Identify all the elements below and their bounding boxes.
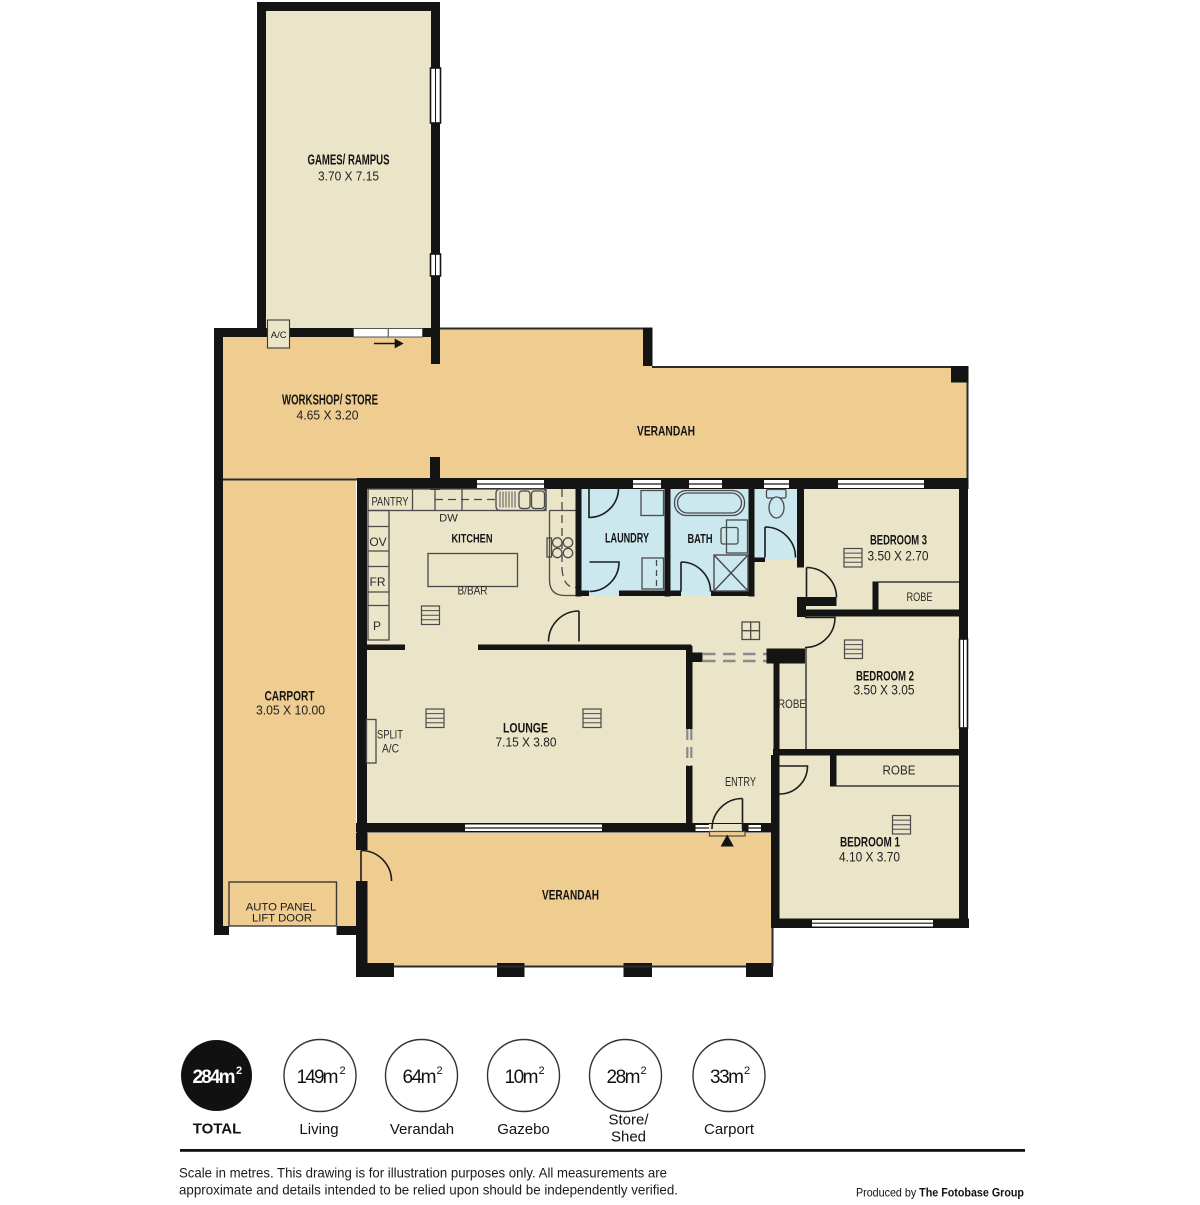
svg-text:2: 2 [340,1065,346,1077]
svg-text:2: 2 [236,1065,242,1077]
svg-text:BATH: BATH [688,531,713,546]
svg-text:4.65 X 3.20: 4.65 X 3.20 [297,408,359,423]
svg-text:VERANDAH: VERANDAH [542,888,599,903]
svg-text:ROBE: ROBE [907,590,933,604]
svg-text:2: 2 [641,1065,647,1077]
svg-text:KITCHEN: KITCHEN [452,532,493,546]
svg-text:GAMES/ RAMPUS: GAMES/ RAMPUS [308,153,390,169]
svg-text:LAUNDRY: LAUNDRY [605,531,649,546]
svg-text:OV: OV [369,535,386,549]
svg-text:284m: 284m [193,1067,236,1088]
svg-text:2: 2 [744,1065,750,1077]
svg-text:2: 2 [539,1065,545,1077]
svg-text:2: 2 [437,1065,443,1077]
svg-text:TOTAL: TOTAL [193,1121,242,1138]
svg-text:A/C: A/C [271,330,287,341]
svg-text:Gazebo: Gazebo [497,1121,550,1138]
svg-text:ENTRY: ENTRY [725,775,756,789]
svg-text:28m: 28m [607,1067,641,1088]
svg-text:Store/: Store/ [608,1112,649,1129]
svg-text:3.70 X 7.15: 3.70 X 7.15 [318,169,379,184]
svg-text:BEDROOM 1: BEDROOM 1 [840,834,900,850]
svg-text:WORKSHOP/ STORE: WORKSHOP/ STORE [282,393,378,409]
svg-text:Carport: Carport [704,1121,755,1138]
svg-text:Scale in metres. This drawing: Scale in metres. This drawing is for ill… [179,1166,667,1181]
svg-text:VERANDAH: VERANDAH [637,424,695,439]
svg-text:64m: 64m [403,1067,437,1088]
svg-text:3.50 X 2.70: 3.50 X 2.70 [868,549,929,564]
svg-text:10m: 10m [505,1067,539,1088]
svg-text:FR: FR [370,575,386,589]
svg-text:7.15 X 3.80: 7.15 X 3.80 [496,735,557,750]
svg-text:3.50 X 3.05: 3.50 X 3.05 [854,683,915,698]
svg-text:LIFT DOOR: LIFT DOOR [252,913,312,925]
svg-text:4.10 X 3.70: 4.10 X 3.70 [839,850,900,865]
svg-text:approximate and details intend: approximate and details intended to be r… [179,1183,678,1198]
svg-text:CARPORT: CARPORT [265,688,315,704]
svg-text:Verandah: Verandah [390,1121,454,1138]
svg-text:ROBE: ROBE [778,699,806,711]
svg-text:Living: Living [299,1121,338,1138]
svg-text:BEDROOM 3: BEDROOM 3 [870,532,927,548]
svg-text:LOUNGE: LOUNGE [503,720,548,736]
svg-text:149m: 149m [297,1067,339,1088]
svg-text:PANTRY: PANTRY [372,495,409,509]
svg-text:3.05 X 10.00: 3.05 X 10.00 [256,703,325,718]
svg-text:Shed: Shed [611,1129,646,1146]
svg-text:A/C: A/C [382,742,399,756]
svg-text:BEDROOM 2: BEDROOM 2 [856,668,914,684]
svg-text:P: P [373,619,381,633]
svg-text:SPLIT: SPLIT [377,728,404,742]
svg-text:33m: 33m [710,1067,744,1088]
svg-text:B/BAR: B/BAR [458,584,488,598]
svg-text:ROBE: ROBE [883,764,916,778]
svg-text:Produced by The Fotobase Group: Produced by The Fotobase Group [856,1186,1024,1200]
svg-text:DW: DW [439,513,458,525]
